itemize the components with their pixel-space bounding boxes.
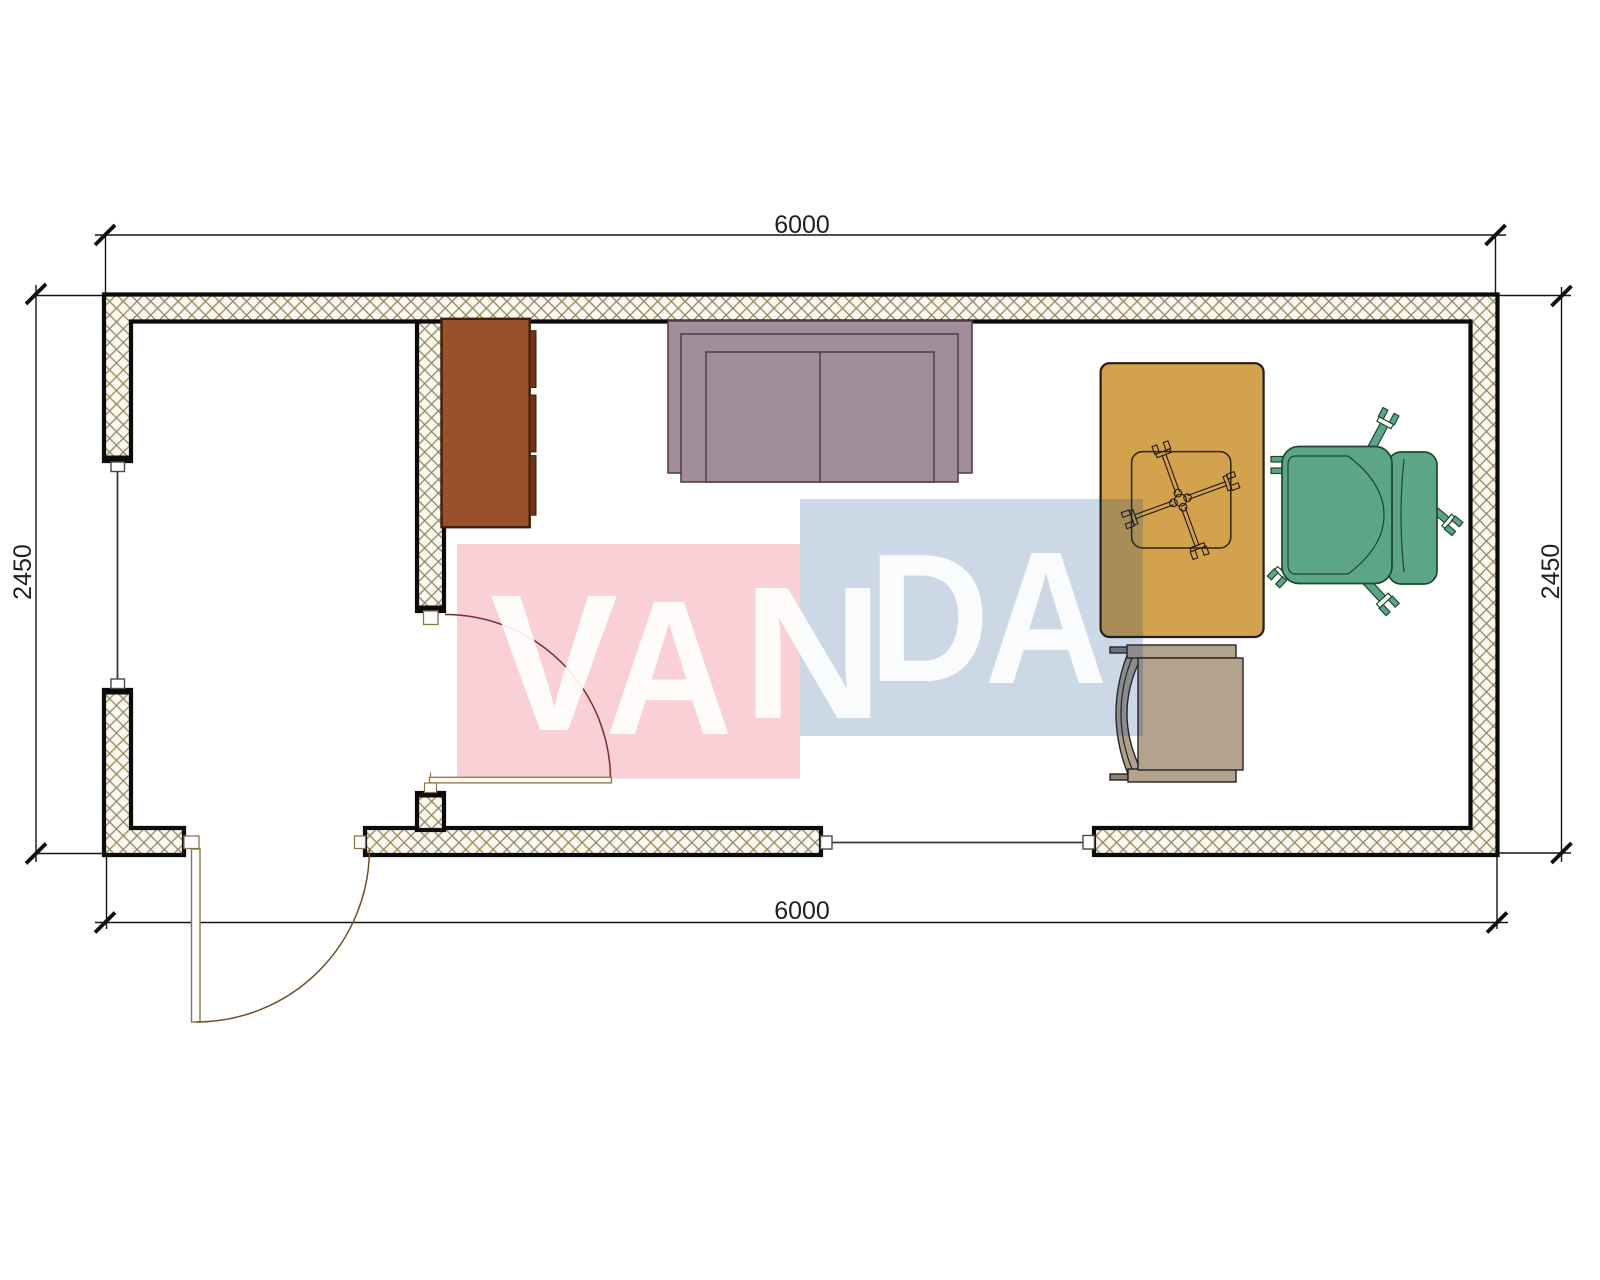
svg-text:N: N: [743, 548, 884, 759]
svg-text:2450: 2450: [9, 544, 37, 600]
svg-text:D: D: [869, 515, 990, 720]
svg-text:6000: 6000: [774, 211, 830, 239]
svg-text:6000: 6000: [774, 897, 830, 925]
svg-text:A: A: [605, 560, 733, 775]
svg-text:A: A: [985, 513, 1108, 724]
svg-text:2450: 2450: [1537, 544, 1565, 600]
svg-text:V: V: [490, 554, 618, 772]
